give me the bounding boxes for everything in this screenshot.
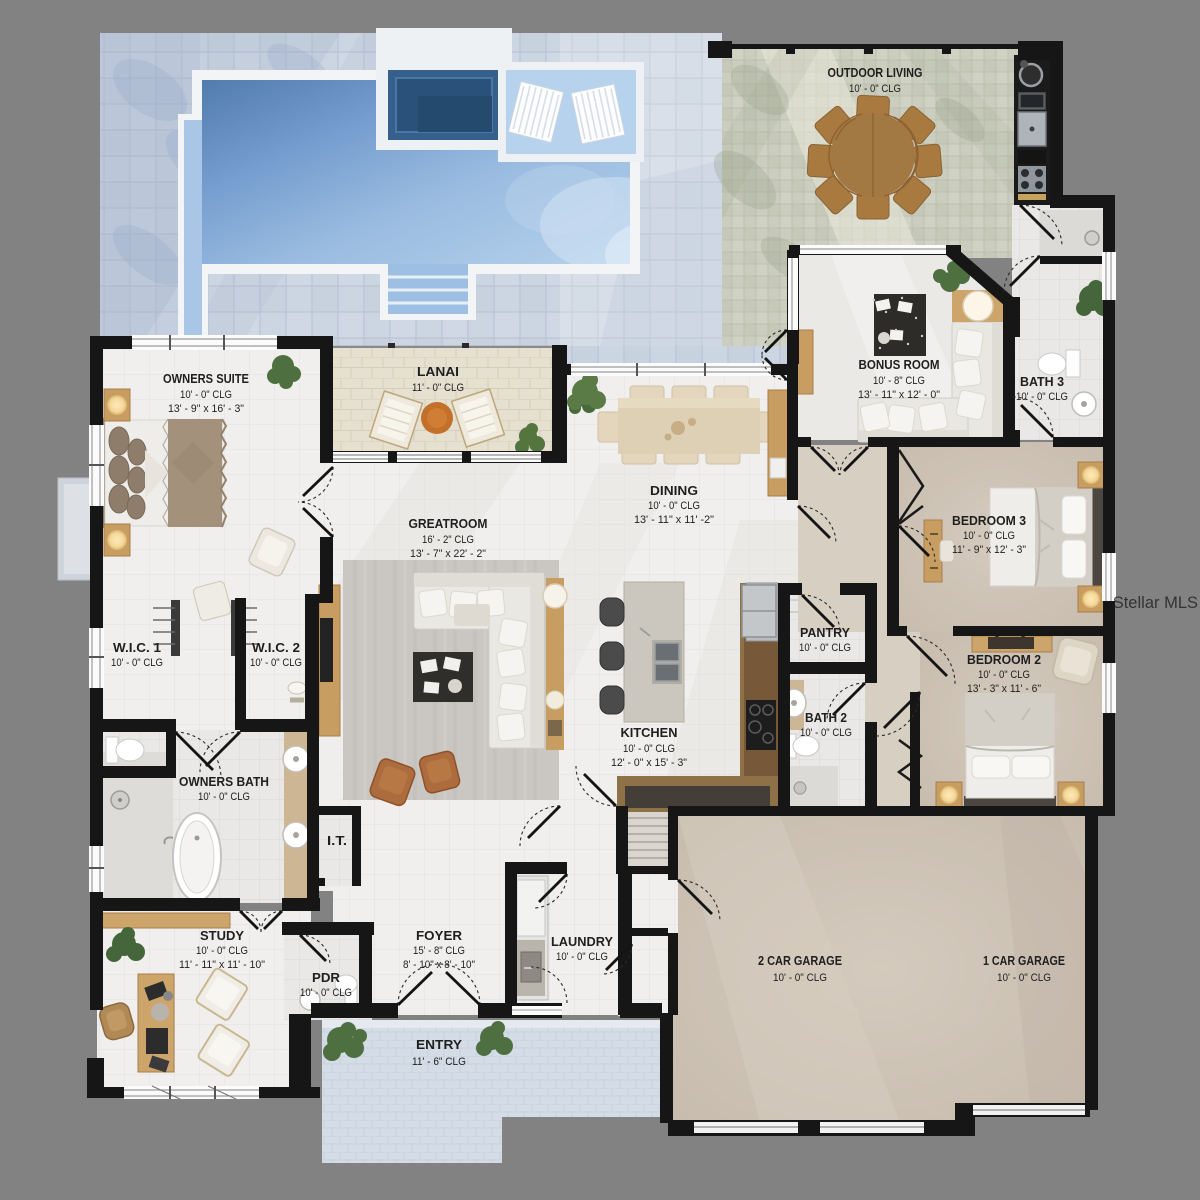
svg-text:BATH 2: BATH 2 (805, 711, 847, 725)
svg-text:2 CAR GARAGE: 2 CAR GARAGE (758, 954, 842, 968)
svg-text:OWNERS SUITE: OWNERS SUITE (163, 372, 249, 386)
svg-text:10' - 0" CLG: 10' - 0" CLG (623, 743, 675, 755)
svg-text:10' - 0" CLG: 10' - 0" CLG (111, 657, 163, 669)
svg-text:16' - 2" CLG: 16' - 2" CLG (422, 534, 474, 546)
svg-text:W.I.C. 2: W.I.C. 2 (252, 641, 300, 655)
svg-text:10' - 0" CLG: 10' - 0" CLG (300, 987, 352, 999)
svg-text:10' - 0" CLG: 10' - 0" CLG (648, 500, 700, 512)
svg-text:10' - 0" CLG: 10' - 0" CLG (198, 791, 250, 803)
svg-text:13' - 11" x 11' -2": 13' - 11" x 11' -2" (634, 514, 714, 526)
svg-text:LAUNDRY: LAUNDRY (551, 935, 614, 949)
svg-text:13' - 11" x 12' - 0": 13' - 11" x 12' - 0" (858, 389, 940, 401)
svg-text:I.T.: I.T. (327, 834, 347, 848)
svg-text:10' - 0" CLG: 10' - 0" CLG (556, 951, 608, 963)
svg-text:ENTRY: ENTRY (416, 1038, 463, 1052)
svg-text:11' - 11" x 11' - 10": 11' - 11" x 11' - 10" (179, 959, 265, 971)
svg-text:10' - 8" CLG: 10' - 8" CLG (873, 375, 925, 387)
svg-text:OUTDOOR LIVING: OUTDOOR LIVING (828, 66, 923, 80)
svg-text:FOYER: FOYER (416, 929, 462, 943)
svg-text:KITCHEN: KITCHEN (621, 726, 678, 740)
svg-text:GREATROOM: GREATROOM (409, 517, 488, 531)
svg-text:11' - 0" CLG: 11' - 0" CLG (412, 382, 464, 394)
svg-text:OWNERS BATH: OWNERS BATH (179, 775, 269, 789)
svg-text:10' - 0" CLG: 10' - 0" CLG (180, 389, 232, 401)
svg-text:10' - 0" CLG: 10' - 0" CLG (963, 530, 1015, 542)
svg-text:DINING: DINING (650, 484, 698, 498)
svg-text:BATH 3: BATH 3 (1020, 375, 1064, 389)
svg-text:STUDY: STUDY (200, 929, 245, 943)
svg-text:10' - 0" CLG: 10' - 0" CLG (773, 972, 827, 984)
svg-text:10' - 0" CLG: 10' - 0" CLG (1016, 391, 1068, 403)
svg-text:W.I.C. 1: W.I.C. 1 (113, 641, 161, 655)
svg-text:10' - 0" CLG: 10' - 0" CLG (997, 972, 1051, 984)
svg-text:10' - 0" CLG: 10' - 0" CLG (250, 657, 302, 669)
svg-text:PANTRY: PANTRY (800, 626, 851, 640)
svg-text:BONUS ROOM: BONUS ROOM (859, 358, 940, 372)
svg-text:10' - 0" CLG: 10' - 0" CLG (978, 669, 1030, 681)
svg-text:PDR: PDR (312, 971, 340, 985)
svg-text:BEDROOM 2: BEDROOM 2 (967, 653, 1041, 667)
svg-text:13' - 3" x 11' - 6": 13' - 3" x 11' - 6" (967, 683, 1041, 695)
svg-text:13' - 9" x 16' - 3": 13' - 9" x 16' - 3" (168, 403, 244, 415)
svg-text:15' - 8" CLG: 15' - 8" CLG (413, 945, 465, 957)
svg-text:11' - 9" x 12' - 3": 11' - 9" x 12' - 3" (952, 544, 1026, 556)
svg-text:12' - 0" x 15' - 3": 12' - 0" x 15' - 3" (611, 757, 687, 769)
svg-text:10' - 0" CLG: 10' - 0" CLG (196, 945, 248, 957)
svg-text:10' - 0" CLG: 10' - 0" CLG (800, 727, 852, 739)
svg-text:Stellar MLS: Stellar MLS (1113, 594, 1198, 612)
svg-text:10' - 0" CLG: 10' - 0" CLG (799, 642, 851, 654)
svg-text:10' - 0" CLG: 10' - 0" CLG (849, 83, 901, 95)
svg-text:8' - 10" x 8' - 10": 8' - 10" x 8' - 10" (403, 959, 475, 971)
svg-text:BEDROOM 3: BEDROOM 3 (952, 514, 1026, 528)
svg-text:11' - 6" CLG: 11' - 6" CLG (412, 1056, 466, 1068)
svg-text:1 CAR GARAGE: 1 CAR GARAGE (983, 954, 1065, 968)
svg-text:LANAI: LANAI (417, 365, 459, 379)
svg-text:13' - 7" x 22' - 2": 13' - 7" x 22' - 2" (410, 548, 486, 560)
